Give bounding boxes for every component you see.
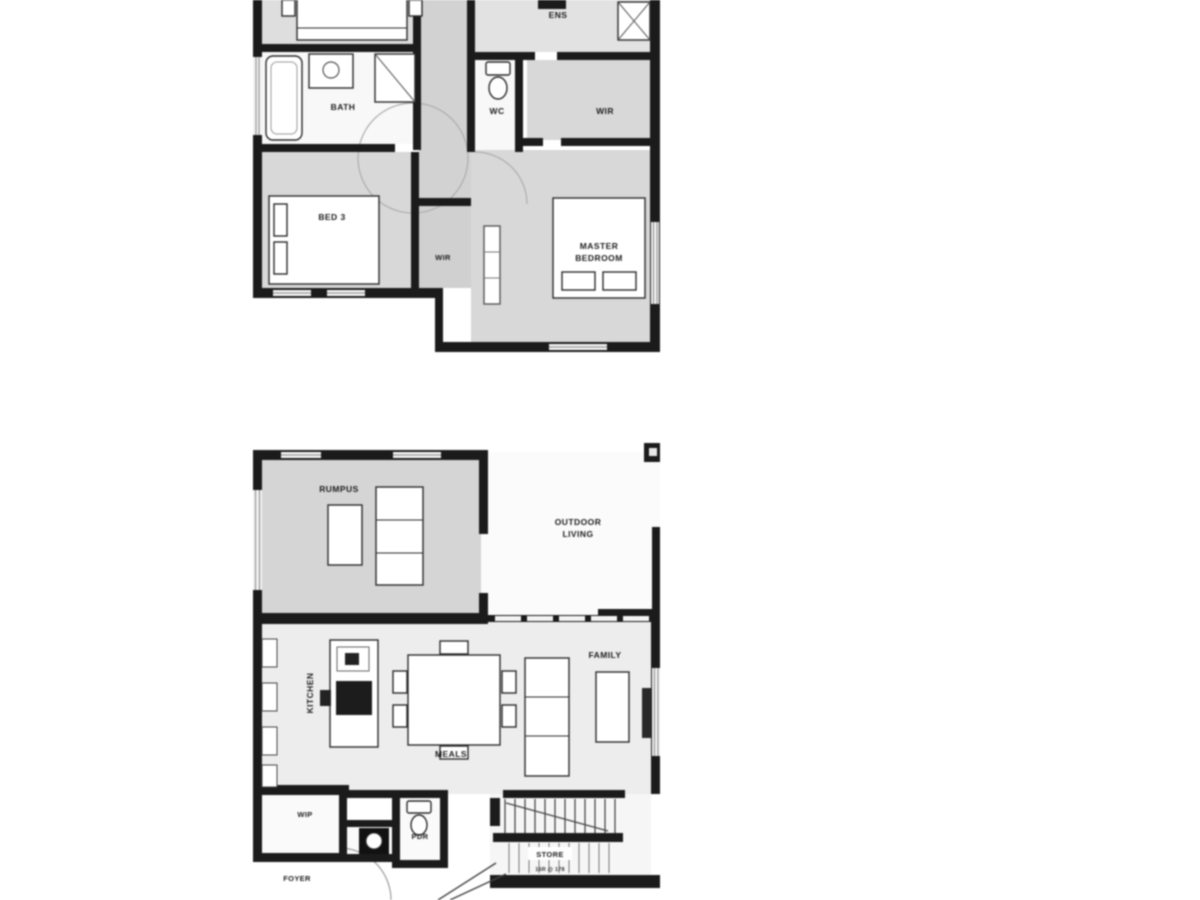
room-label-family: FAMILY xyxy=(588,650,621,660)
bed2-bed-icon xyxy=(282,0,422,40)
tv-unit-icon xyxy=(642,688,651,738)
room-label-kitchen: KITCHEN xyxy=(305,673,315,714)
vanity-basin-icon xyxy=(309,54,353,88)
entry-door-leaf xyxy=(438,863,496,900)
room-label-foyer: FOYER xyxy=(283,874,311,883)
dining-table-icon xyxy=(393,641,516,759)
room-label-master-line1: MASTER xyxy=(580,241,619,251)
basin-icon xyxy=(359,828,389,854)
bathtub-icon xyxy=(266,56,302,140)
room-label-meals: MEALS xyxy=(435,749,467,759)
armchair-icon xyxy=(596,672,629,742)
room-label-outdoor-line2: LIVING xyxy=(562,529,593,539)
room-label-rumpus: RUMPUS xyxy=(319,484,359,494)
room-label-store: STORE xyxy=(536,850,563,859)
room-label-master-line2: BEDROOM xyxy=(575,253,623,263)
north-marker-icon xyxy=(649,448,657,456)
room-label-bed3: BED 3 xyxy=(318,212,345,222)
bed3-bed-icon xyxy=(269,196,379,284)
master-robe-icon xyxy=(484,226,500,304)
room-label-wir2: WIR xyxy=(435,253,451,262)
room-label-wc: WC xyxy=(489,106,504,116)
room-label-pdr: PDR xyxy=(412,832,429,841)
room-label-wip: WIP xyxy=(297,810,312,819)
floorplan-page: ENS BATH WC WIR BED 3 WIR MASTER BEDROOM xyxy=(0,0,1200,900)
stair-note: 16R @ 178 xyxy=(535,867,565,873)
corner-shower-icon xyxy=(375,54,415,102)
upper-floor-plan: ENS BATH WC WIR BED 3 WIR MASTER BEDROOM xyxy=(253,0,660,352)
ground-floor-plan: RUMPUS OUTDOOR LIVING KITCHEN MEALS FAMI… xyxy=(253,443,660,900)
family-sofa-icon xyxy=(525,658,569,776)
rumpus-sofa-icon xyxy=(376,487,423,585)
room-label-outdoor-line1: OUTDOOR xyxy=(555,517,602,527)
room-label-bath: BATH xyxy=(331,102,356,112)
coffee-table-icon xyxy=(328,505,362,565)
ens-shower-icon xyxy=(618,2,650,40)
room-label-wir: WIR xyxy=(596,106,614,116)
room-label-ens: ENS xyxy=(549,10,568,20)
